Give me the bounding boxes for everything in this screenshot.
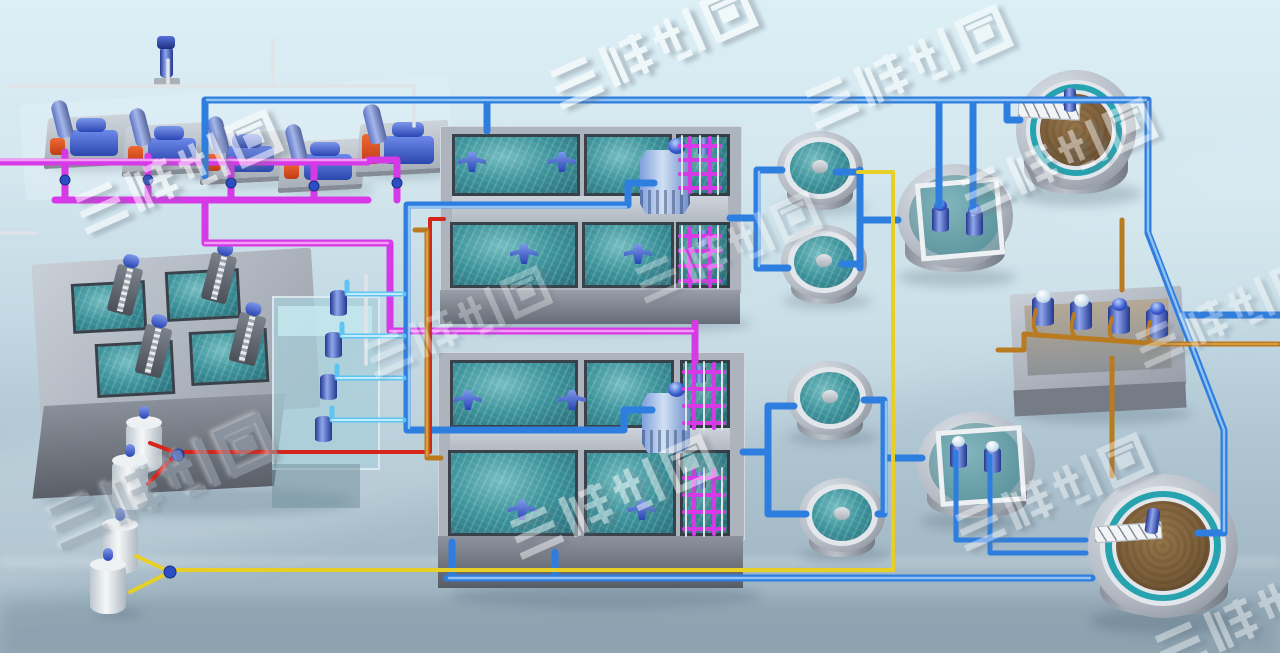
plant-3d-render: 三维制图 三维制图 三维制图 三维制图 三维制图 三维制图 三维制图 三维制图 … xyxy=(0,0,1280,653)
sludge-pipes-orange xyxy=(415,220,1280,476)
chemical-pipe-red xyxy=(148,219,444,484)
pipe-network xyxy=(0,0,1280,653)
chemical-pipe-yellow xyxy=(130,172,893,592)
